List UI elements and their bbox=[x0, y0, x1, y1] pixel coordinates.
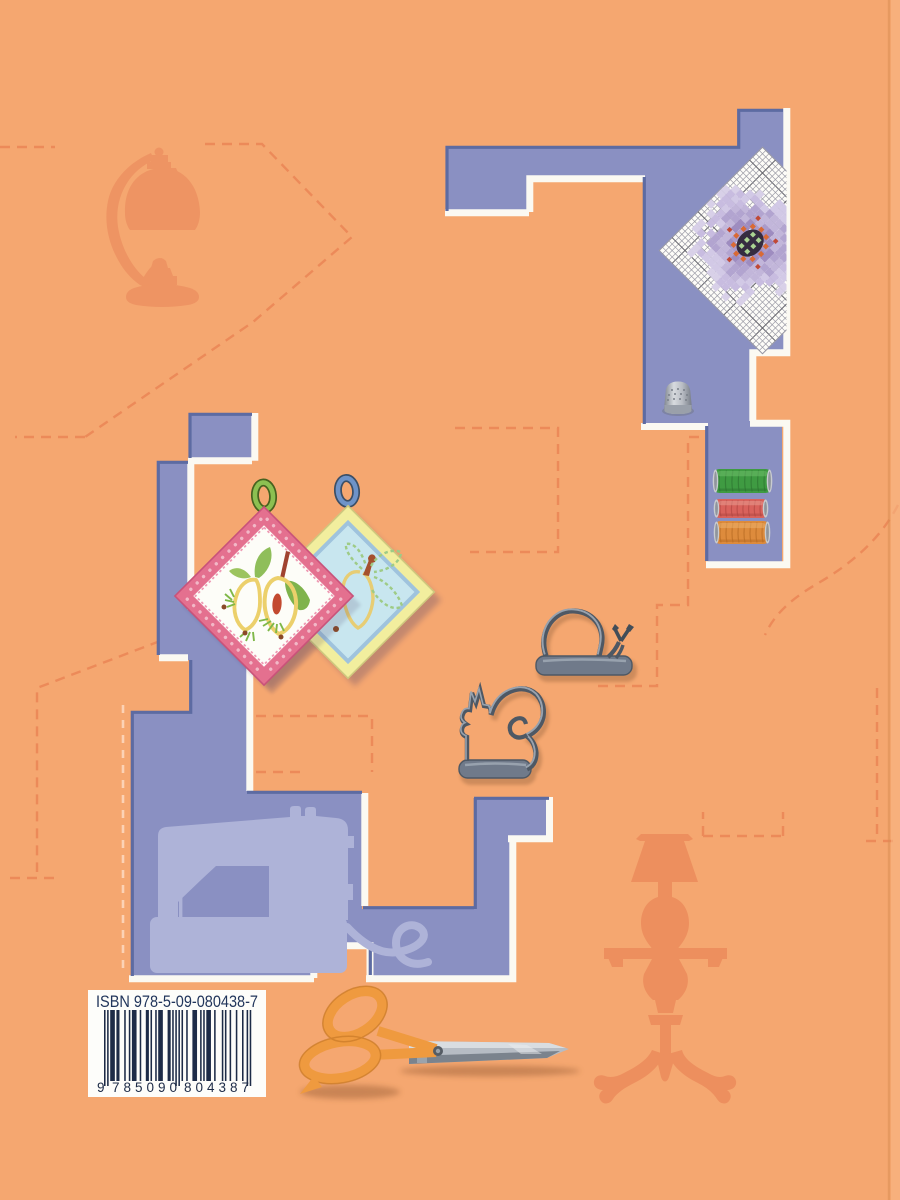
svg-text:804387: 804387 bbox=[184, 1080, 253, 1095]
svg-text:9: 9 bbox=[97, 1080, 105, 1095]
svg-text:ISBN 978-5-09-080438-7: ISBN 978-5-09-080438-7 bbox=[96, 993, 258, 1011]
svg-text:785090: 785090 bbox=[112, 1080, 181, 1095]
